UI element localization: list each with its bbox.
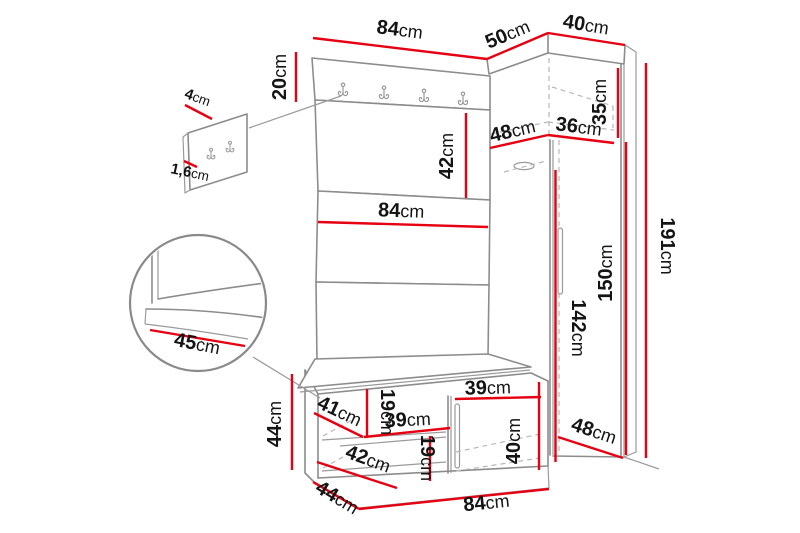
dim-bench-shelf-width: 39cm	[384, 408, 431, 432]
bench-door-handle	[455, 404, 460, 468]
dim-bench-opening-height: 40cm	[503, 418, 525, 464]
dim-panel-mid-width: 84cm	[378, 199, 425, 223]
dim-top-compartment-height: 35cm	[589, 79, 611, 125]
dim-bench-depth: 44cm	[312, 477, 363, 520]
dim-panel-section-height: 42cm	[436, 133, 458, 179]
dim-wardrobe-door-height: 150cm	[595, 244, 617, 301]
panel-segment	[315, 100, 490, 200]
dim-hook-board-height: 20cm	[269, 54, 291, 100]
dim-line-bench-width	[359, 489, 549, 509]
dim-panel-top-width: 84cm	[375, 16, 424, 43]
dim-wardrobe-total-height: 191cm	[656, 217, 678, 274]
wardrobe-door-handle	[558, 228, 563, 294]
dim-bench-gap-lower: 19cm	[416, 435, 438, 481]
wardrobe-bottom-edge	[553, 456, 624, 457]
corner-wardrobe	[487, 33, 659, 469]
dim-corner-top-depth: 50cm	[482, 15, 533, 53]
diagram-canvas: 84cm 50cm 40cm 20cm 4cm 1,6cm 42cm 84cm …	[0, 0, 800, 533]
panel-segment	[316, 282, 489, 362]
bench-detail-circle	[130, 235, 320, 398]
dim-bench-height: 44cm	[264, 401, 286, 447]
dim-line-panel-top-width	[313, 38, 487, 59]
dim-bench-opening-width: 39cm	[464, 376, 511, 400]
dim-wardrobe-inner-height: 142cm	[567, 299, 589, 356]
floor-line	[624, 457, 659, 469]
furniture-dimension-diagram: 84cm 50cm 40cm 20cm 4cm 1,6cm 42cm 84cm …	[0, 0, 800, 533]
dim-top-shelf-depth: 48cm	[488, 115, 538, 147]
dim-bench-width: 84cm	[462, 490, 510, 517]
